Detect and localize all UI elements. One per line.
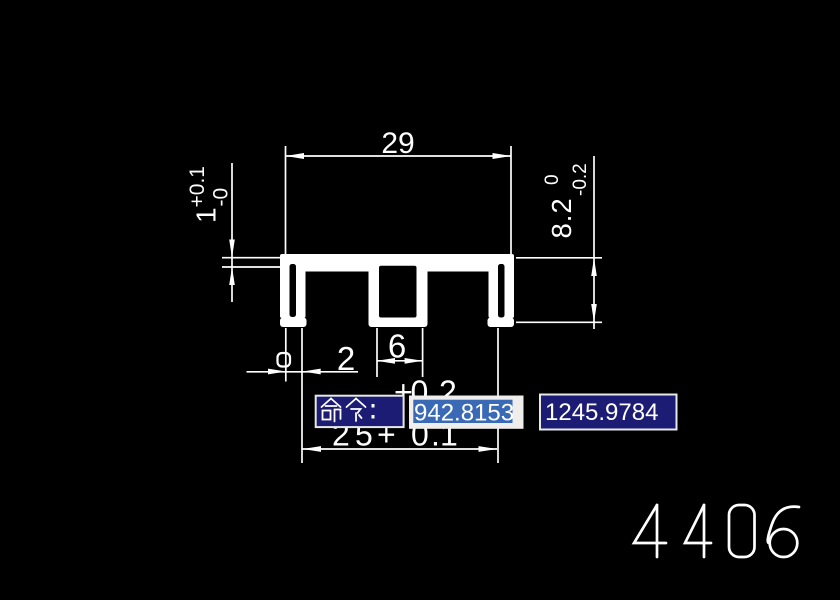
svg-text:2: 2: [337, 340, 355, 377]
svg-text:1245.9784: 1245.9784: [545, 399, 658, 426]
svg-text:1: 1: [191, 207, 222, 223]
svg-text:8.2: 8.2: [546, 197, 577, 238]
svg-text:942.8153: 942.8153: [414, 400, 514, 427]
svg-text:+0.1: +0.1: [186, 166, 209, 207]
svg-text:6: 6: [388, 328, 406, 365]
svg-text:-0: -0: [210, 188, 233, 207]
svg-text:-0.2: -0.2: [570, 163, 591, 196]
svg-text:29: 29: [381, 127, 414, 160]
svg-text:0: 0: [542, 174, 563, 185]
